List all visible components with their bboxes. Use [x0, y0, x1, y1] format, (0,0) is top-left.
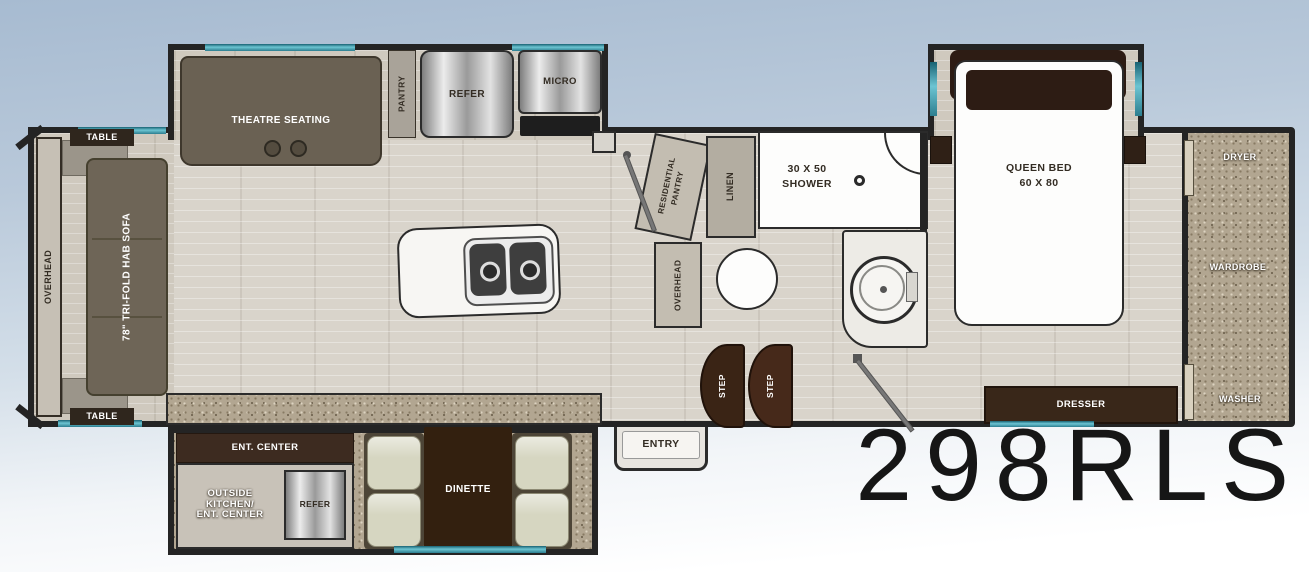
range-icon: [520, 116, 600, 136]
dinette-bench: [512, 433, 572, 549]
bed-pillow-area: [966, 70, 1112, 110]
table-label-top: TABLE: [70, 129, 134, 146]
microwave-label: MICRO: [520, 52, 600, 112]
outside-refrigerator-label: REFER: [286, 472, 344, 538]
floorplan-canvas: OVERHEAD 78" TRI-FOLD HAB SOFA TABLE TAB…: [0, 0, 1309, 572]
outside-kitchen: OUTSIDE KITCHEN/ ENT. CENTER REFER: [176, 463, 354, 549]
ent-center: ENT. CENTER: [176, 433, 354, 463]
bench-cushion: [515, 436, 569, 490]
pantry-cabinet: PANTRY: [388, 50, 416, 138]
entry-label: ENTRY: [617, 431, 705, 459]
table-label-bottom: TABLE: [70, 408, 134, 425]
toilet-icon: [716, 248, 778, 310]
model-number: 298RLS: [840, 424, 1302, 508]
sink-basin-icon: [509, 242, 547, 295]
shower-drain-icon: [854, 175, 865, 186]
faucet-icon: [906, 272, 918, 302]
shower-label: SHOWER: [768, 178, 846, 192]
washer-label: WASHER: [1196, 392, 1284, 408]
window-accent: [1135, 62, 1142, 116]
microwave: MICRO: [518, 50, 602, 114]
entry-step: STEP: [748, 344, 793, 428]
overhead-cabinet-mid-label: OVERHEAD: [656, 244, 700, 326]
entry-step: STEP: [700, 344, 745, 428]
tri-fold-sofa: 78" TRI-FOLD HAB SOFA: [86, 158, 168, 396]
step-label: STEP: [702, 346, 743, 426]
window-accent: [394, 546, 546, 553]
queen-bed: QUEEN BED 60 X 80: [954, 60, 1124, 326]
overhead-cabinet-mid: OVERHEAD: [654, 242, 702, 328]
step-label: STEP: [750, 346, 791, 426]
refrigerator-label: REFER: [422, 52, 512, 136]
wardrobe-label: WARDROBE: [1190, 260, 1286, 276]
entry-door: ENTRY: [614, 427, 708, 471]
kitchen-island: [396, 223, 561, 319]
outside-kitchen-label: OUTSIDE KITCHEN/ ENT. CENTER: [180, 469, 280, 541]
dryer-label: DRYER: [1196, 150, 1284, 166]
cupholder-icon: [290, 140, 307, 157]
counter-end-cabinet: [592, 131, 616, 153]
dinette-table: DINETTE: [424, 427, 512, 551]
bed-type-label: QUEEN BED: [956, 162, 1122, 176]
sink-drain-icon: [880, 286, 887, 293]
shower-size-label: 30 X 50: [768, 163, 846, 177]
sofa-label: 78" TRI-FOLD HAB SOFA: [88, 160, 166, 394]
ent-center-label: ENT. CENTER: [177, 434, 353, 462]
refrigerator: REFER: [420, 50, 514, 138]
vanity: [842, 230, 928, 348]
sink-drain-icon: [480, 261, 501, 282]
island-sink-unit: [463, 235, 555, 306]
overhead-cabinet-front: OVERHEAD: [36, 137, 62, 417]
shower: 30 X 50 SHOWER: [758, 131, 928, 229]
bench-cushion: [367, 436, 421, 490]
dinette-bench: [364, 433, 424, 549]
theatre-seating-label: THEATRE SEATING: [182, 110, 380, 130]
outside-refrigerator: REFER: [284, 470, 346, 540]
linen-cabinet: LINEN: [706, 136, 756, 238]
overhead-cabinet-label: OVERHEAD: [38, 139, 60, 415]
cupholder-icon: [264, 140, 281, 157]
pantry-label: PANTRY: [389, 51, 415, 137]
bed-size-label: 60 X 80: [956, 177, 1122, 191]
window-accent: [205, 44, 355, 51]
dinette-label: DINETTE: [424, 427, 512, 551]
theatre-seating: THEATRE SEATING: [180, 56, 382, 166]
closet-door-handle: [1184, 140, 1194, 196]
bench-cushion: [367, 493, 421, 547]
kitchen-counter: [166, 393, 602, 425]
nightstand: [1124, 136, 1146, 164]
nightstand: [930, 136, 952, 164]
rear-closet: [1182, 133, 1289, 421]
sink-basin-icon: [469, 243, 507, 296]
linen-label: LINEN: [708, 138, 754, 236]
bench-cushion: [515, 493, 569, 547]
window-accent: [930, 62, 937, 116]
sink-drain-icon: [520, 260, 541, 281]
